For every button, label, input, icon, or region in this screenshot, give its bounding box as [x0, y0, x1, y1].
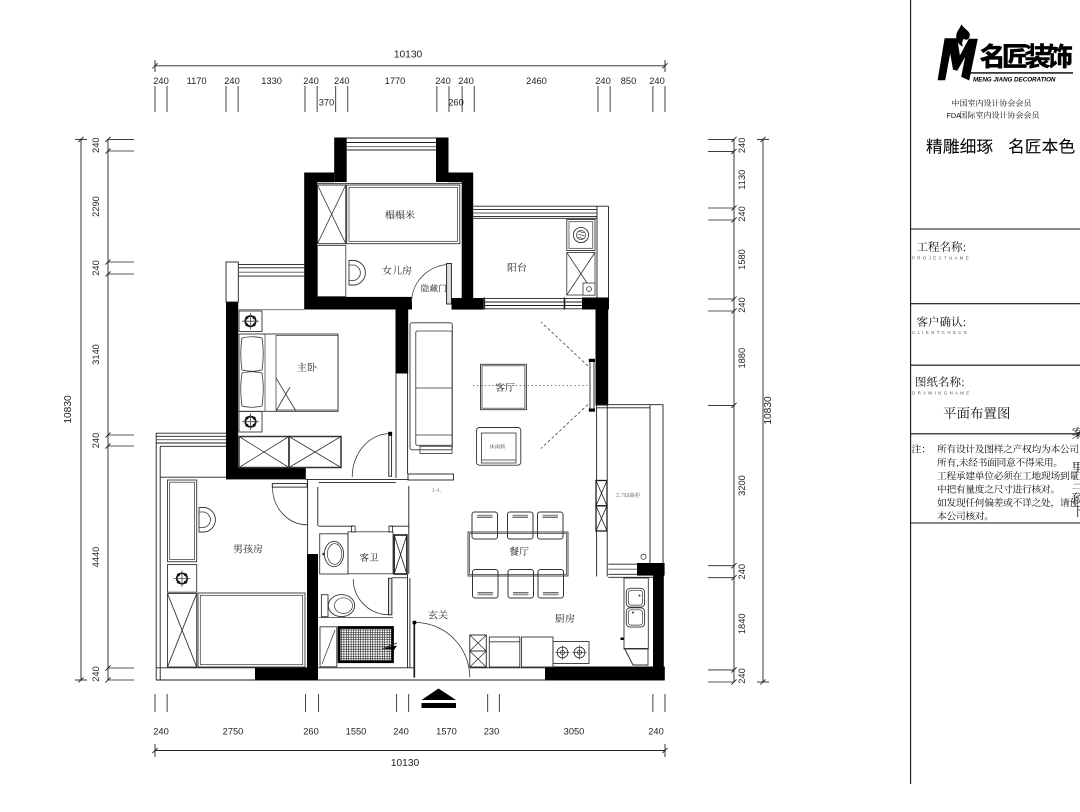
svg-text:10130: 10130 — [391, 758, 420, 769]
svg-text:230: 230 — [484, 727, 500, 737]
svg-text:FDA: FDA — [947, 111, 962, 120]
svg-text:240: 240 — [737, 206, 747, 222]
svg-text:260: 260 — [303, 727, 319, 737]
svg-text:1880: 1880 — [737, 348, 747, 369]
svg-text:4440: 4440 — [91, 547, 101, 568]
svg-text:D R A W I N G N A M E: D R A W I N G N A M E — [912, 391, 970, 396]
svg-text:850: 850 — [621, 76, 637, 86]
svg-text:2750: 2750 — [223, 727, 244, 737]
svg-text:1770: 1770 — [385, 76, 406, 86]
svg-text:MENG JIANG DECORATION: MENG JIANG DECORATION — [973, 76, 1056, 83]
svg-text:1580: 1580 — [737, 249, 747, 270]
svg-text:240: 240 — [595, 76, 611, 86]
svg-text:240: 240 — [91, 260, 101, 276]
svg-text:240: 240 — [737, 668, 747, 684]
svg-text:1570: 1570 — [436, 727, 457, 737]
svg-text:240: 240 — [393, 727, 409, 737]
svg-text:P R O J E C T N A M E: P R O J E C T N A M E — [912, 256, 969, 261]
svg-text:240: 240 — [737, 564, 747, 580]
svg-text:1330: 1330 — [261, 76, 282, 86]
svg-text:240: 240 — [153, 727, 169, 737]
svg-text:240: 240 — [435, 76, 451, 86]
svg-text:240: 240 — [91, 433, 101, 449]
svg-text:1840: 1840 — [737, 613, 747, 634]
svg-text:10830: 10830 — [63, 395, 74, 424]
svg-text:240: 240 — [737, 138, 747, 154]
svg-text:3140: 3140 — [91, 344, 101, 365]
svg-text:240: 240 — [153, 76, 169, 86]
svg-text:10830: 10830 — [763, 396, 774, 425]
svg-text:1550: 1550 — [346, 727, 367, 737]
svg-text:240: 240 — [334, 76, 350, 86]
svg-text:3050: 3050 — [564, 727, 585, 737]
svg-text:1170: 1170 — [187, 76, 207, 86]
svg-text:240: 240 — [91, 137, 101, 153]
svg-text:C L I E N T C H E C K: C L I E N T C H E C K — [912, 330, 967, 335]
svg-text:240: 240 — [649, 76, 665, 86]
svg-text:3200: 3200 — [737, 475, 747, 496]
svg-text:240: 240 — [737, 297, 747, 313]
svg-text:240: 240 — [648, 727, 664, 737]
svg-text:240: 240 — [224, 76, 240, 86]
svg-text:240: 240 — [303, 76, 319, 86]
svg-text:1130: 1130 — [737, 170, 747, 190]
svg-text:2460: 2460 — [526, 76, 547, 86]
svg-text:10130: 10130 — [394, 50, 423, 61]
svg-text:240: 240 — [91, 666, 101, 682]
svg-text:2290: 2290 — [91, 196, 101, 217]
svg-text:240: 240 — [458, 76, 474, 86]
svg-text:260: 260 — [448, 98, 464, 108]
svg-text:370: 370 — [319, 98, 335, 108]
